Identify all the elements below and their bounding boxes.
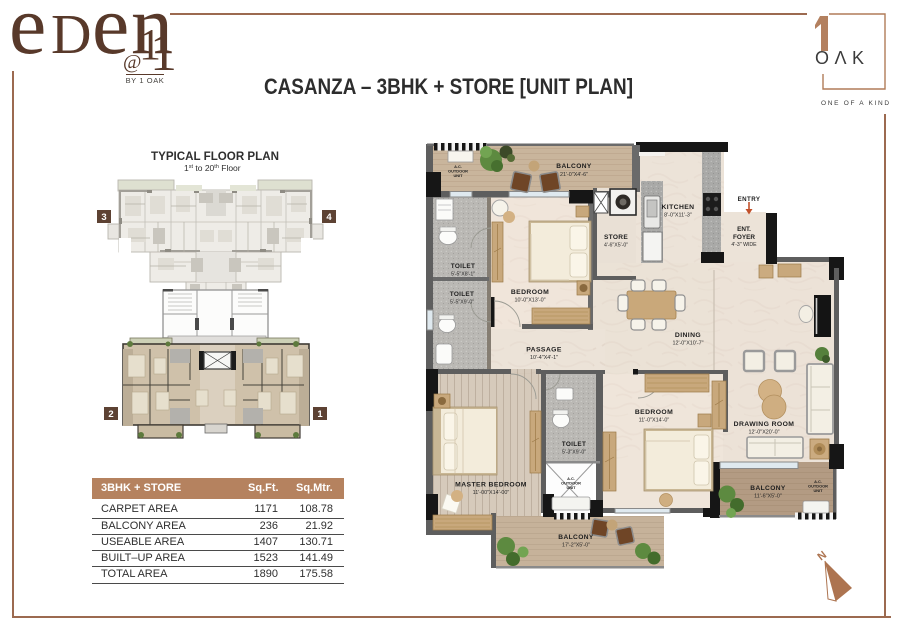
svg-text:5'-5"X8'-1": 5'-5"X8'-1" (451, 272, 475, 278)
svg-text:4'-3" WIDE: 4'-3" WIDE (731, 242, 757, 248)
svg-text:UNIT: UNIT (453, 173, 463, 178)
svg-text:UNIT: UNIT (813, 488, 823, 493)
svg-text:17'-2"X5'-0": 17'-2"X5'-0" (562, 543, 590, 549)
svg-text:11'-00"X14'-00": 11'-00"X14'-00" (473, 490, 510, 496)
svg-text:2: 2 (108, 409, 113, 420)
svg-text:BALCONY: BALCONY (556, 163, 592, 170)
svg-text:5'-5"X9'-0": 5'-5"X9'-0" (450, 300, 474, 306)
svg-text:TOILET: TOILET (562, 441, 586, 448)
svg-text:1: 1 (317, 409, 323, 420)
svg-text:12'-0"X10'-7": 12'-0"X10'-7" (672, 341, 703, 347)
svg-text:KITCHEN: KITCHEN (661, 204, 694, 211)
svg-text:8'-0"X11'-3": 8'-0"X11'-3" (664, 213, 692, 219)
svg-text:N: N (815, 549, 829, 563)
svg-text:ENT.: ENT. (737, 226, 751, 233)
svg-text:11'-0"X14'-0": 11'-0"X14'-0" (639, 418, 670, 424)
svg-text:BEDROOM: BEDROOM (511, 289, 549, 296)
svg-text:PASSAGE: PASSAGE (526, 347, 562, 354)
svg-text:STORE: STORE (604, 234, 628, 241)
svg-text:UNIT: UNIT (566, 485, 576, 490)
svg-text:TOILET: TOILET (451, 263, 475, 270)
svg-text:BEDROOM: BEDROOM (635, 409, 673, 416)
svg-text:DRAWING ROOM: DRAWING ROOM (734, 421, 795, 428)
svg-text:11'-6"X5'-0": 11'-6"X5'-0" (754, 494, 782, 500)
svg-text:10'-0"X13'-0": 10'-0"X13'-0" (514, 298, 545, 304)
svg-text:FOYER: FOYER (733, 234, 755, 241)
svg-text:BALCONY: BALCONY (558, 534, 594, 541)
svg-text:TOILET: TOILET (450, 291, 474, 298)
svg-text:BALCONY: BALCONY (750, 485, 786, 492)
svg-text:10'-4"X4'-1": 10'-4"X4'-1" (530, 355, 558, 361)
svg-text:12'-0"X20'-0": 12'-0"X20'-0" (748, 430, 779, 436)
svg-text:21'-0"X4'-6": 21'-0"X4'-6" (560, 172, 588, 178)
svg-text:4'-6"X5'-0": 4'-6"X5'-0" (604, 243, 628, 249)
svg-text:ENTRY: ENTRY (738, 196, 761, 203)
svg-text:DINING: DINING (675, 332, 701, 339)
svg-text:MASTER BEDROOM: MASTER BEDROOM (455, 482, 527, 489)
svg-text:3: 3 (101, 212, 106, 223)
svg-text:4: 4 (326, 212, 332, 223)
svg-text:5'-3"X9'-0": 5'-3"X9'-0" (562, 450, 586, 456)
